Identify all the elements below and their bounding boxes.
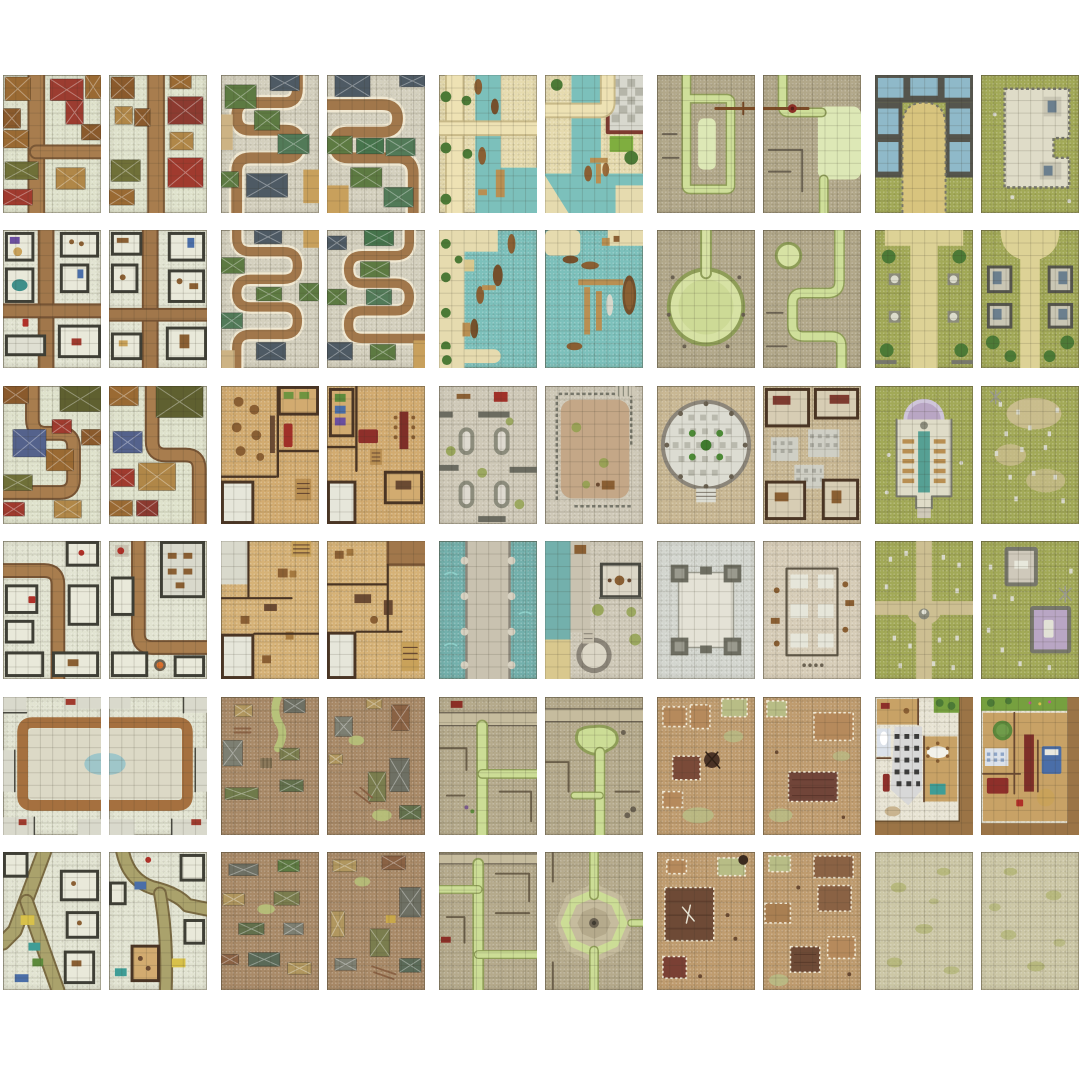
tile-pair-city-streets-blue-roofs bbox=[3, 386, 207, 524]
map-panel-sewer-channels-right bbox=[763, 75, 861, 213]
map-panel-canal-bridge-left bbox=[439, 541, 537, 679]
map-panel-stone-plaza-ruins-left bbox=[439, 386, 537, 524]
map-panel-temple-and-graveyard-right bbox=[981, 386, 1079, 524]
map-panel-sewer-octagon-left bbox=[439, 852, 537, 990]
map-panel-tavern-interior-right bbox=[327, 386, 425, 524]
map-panel-temple-and-graveyard-left bbox=[875, 386, 973, 524]
map-tiles-collage bbox=[0, 0, 1080, 1080]
tile-pair-temple-and-graveyard bbox=[875, 386, 1079, 524]
tile-pair-mansion-interior bbox=[875, 697, 1079, 835]
map-panel-sewer-junctions-right bbox=[545, 697, 643, 835]
tile-pair-shantytown-dirt bbox=[221, 697, 425, 835]
map-panel-ruined-halls-right bbox=[763, 852, 861, 990]
tile-pair-village-switchback-road bbox=[221, 230, 425, 368]
map-panel-shanty-rows-right bbox=[327, 852, 425, 990]
map-panel-sewer-cistern-right bbox=[763, 230, 861, 368]
map-panel-shanty-rows-left bbox=[221, 852, 319, 990]
tile-pair-sewer-junctions bbox=[439, 697, 643, 835]
map-panel-warehouse-interiors-left bbox=[221, 541, 319, 679]
tile-pair-docks-and-boats bbox=[439, 230, 643, 368]
map-panel-graveyard-mausoleums-right bbox=[981, 541, 1079, 679]
map-panel-warehouse-interiors-right bbox=[327, 541, 425, 679]
tile-pair-city-diagonal-streets bbox=[3, 852, 207, 990]
map-panel-garden-promenade-right bbox=[981, 230, 1079, 368]
map-panel-blank-cobble-tiles-left bbox=[875, 852, 973, 990]
map-panel-shantytown-dirt-right bbox=[327, 697, 425, 835]
tiles-grid bbox=[3, 75, 1079, 990]
tile-pair-sewer-channels bbox=[657, 75, 861, 213]
map-panel-city-streets-red-roofs-right bbox=[109, 75, 207, 213]
map-panel-shantytown-dirt-left bbox=[221, 697, 319, 835]
tile-pair-garden-promenade bbox=[875, 230, 1079, 368]
map-panel-canal-crossing-right bbox=[545, 75, 643, 213]
tile-pair-blank-cobble-tiles bbox=[875, 852, 1079, 990]
map-panel-city-diagonal-streets-right bbox=[109, 852, 207, 990]
map-panel-mansion-interior-left bbox=[875, 697, 973, 835]
map-panel-city-diagonal-streets-left bbox=[3, 852, 101, 990]
map-panel-grand-plaza-fountain-left bbox=[3, 697, 101, 835]
map-panel-blank-cobble-tiles-right bbox=[981, 852, 1079, 990]
tile-pair-ruined-halls bbox=[657, 852, 861, 990]
tile-pair-village-winding-road bbox=[221, 75, 425, 213]
tile-pair-ruined-courtyard bbox=[875, 75, 1079, 213]
map-panel-village-switchback-road-right bbox=[327, 230, 425, 368]
tile-pair-ruined-buildings bbox=[657, 697, 861, 835]
tile-pair-warehouse-interiors bbox=[221, 541, 425, 679]
tile-pair-graveyard-mausoleums bbox=[875, 541, 1079, 679]
map-panel-canal-bridge-right bbox=[545, 541, 643, 679]
map-panel-mosaic-rotunda-right bbox=[763, 386, 861, 524]
tile-pair-city-block-interiors bbox=[3, 541, 207, 679]
map-panel-docks-and-boats-left bbox=[439, 230, 537, 368]
map-panel-city-block-interiors-left bbox=[3, 541, 101, 679]
map-panel-ruined-halls-left bbox=[657, 852, 755, 990]
map-panel-village-winding-road-left bbox=[221, 75, 319, 213]
tile-pair-tavern-interior bbox=[221, 386, 425, 524]
map-panel-graveyard-mausoleums-left bbox=[875, 541, 973, 679]
map-panel-village-winding-road-right bbox=[327, 75, 425, 213]
map-panel-city-block-interiors-right bbox=[109, 541, 207, 679]
map-panel-tavern-interior-left bbox=[221, 386, 319, 524]
tile-pair-sewer-octagon bbox=[439, 852, 643, 990]
tile-pair-stone-plaza-ruins bbox=[439, 386, 643, 524]
tile-pair-canal-crossing bbox=[439, 75, 643, 213]
map-panel-grand-plaza-fountain-right bbox=[109, 697, 207, 835]
map-panel-docks-and-boats-right bbox=[545, 230, 643, 368]
map-panel-ruined-courtyard-right bbox=[981, 75, 1079, 213]
map-panel-fort-courtyard-left bbox=[657, 541, 755, 679]
map-panel-sewer-cistern-left bbox=[657, 230, 755, 368]
tile-pair-fort-courtyard bbox=[657, 541, 861, 679]
map-panel-ruined-buildings-right bbox=[763, 697, 861, 835]
map-panel-sewer-junctions-left bbox=[439, 697, 537, 835]
map-panel-city-streets-blue-roofs-right bbox=[109, 386, 207, 524]
map-panel-mansion-interior-right bbox=[981, 697, 1079, 835]
tile-pair-shanty-rows bbox=[221, 852, 425, 990]
tile-pair-city-streets-red-roofs bbox=[3, 75, 207, 213]
map-panel-city-streets-red-roofs-left bbox=[3, 75, 101, 213]
tile-pair-city-interiors-crossroads bbox=[3, 230, 207, 368]
map-panel-mosaic-rotunda-left bbox=[657, 386, 755, 524]
map-panel-fort-courtyard-right bbox=[763, 541, 861, 679]
map-panel-garden-promenade-left bbox=[875, 230, 973, 368]
tile-pair-grand-plaza-fountain bbox=[3, 697, 207, 835]
map-panel-canal-crossing-left bbox=[439, 75, 537, 213]
map-panel-stone-plaza-ruins-right bbox=[545, 386, 643, 524]
map-panel-city-streets-blue-roofs-left bbox=[3, 386, 101, 524]
map-panel-sewer-channels-left bbox=[657, 75, 755, 213]
map-panel-village-switchback-road-left bbox=[221, 230, 319, 368]
tile-pair-mosaic-rotunda bbox=[657, 386, 861, 524]
tile-pair-sewer-cistern bbox=[657, 230, 861, 368]
map-panel-ruined-buildings-left bbox=[657, 697, 755, 835]
map-panel-sewer-octagon-right bbox=[545, 852, 643, 990]
map-panel-city-interiors-crossroads-left bbox=[3, 230, 101, 368]
map-panel-ruined-courtyard-left bbox=[875, 75, 973, 213]
map-panel-city-interiors-crossroads-right bbox=[109, 230, 207, 368]
tile-pair-canal-bridge bbox=[439, 541, 643, 679]
